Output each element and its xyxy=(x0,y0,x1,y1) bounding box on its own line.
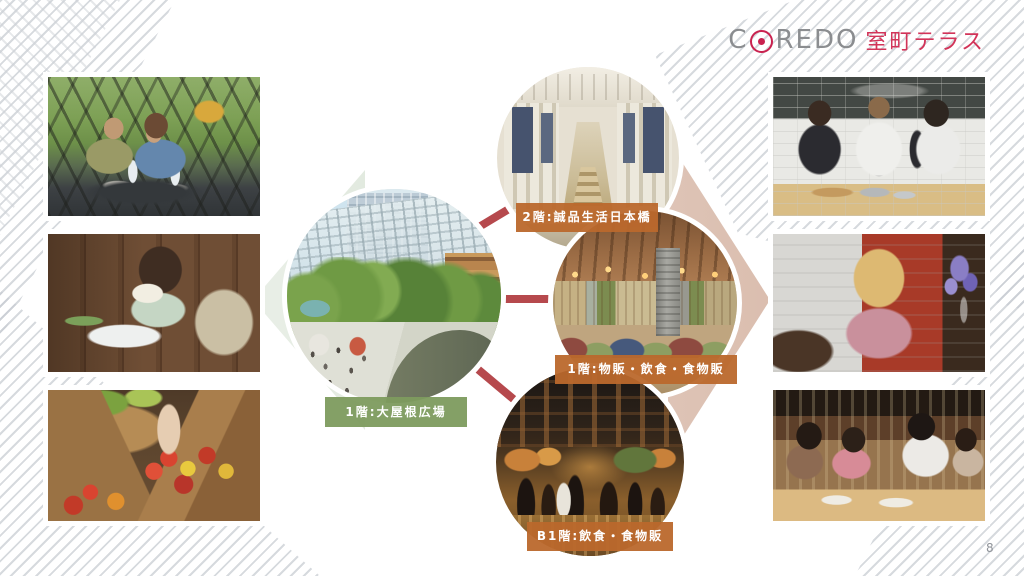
photo-terrace-dining-couple xyxy=(43,72,265,221)
photo-woman-at-red-wall-cafe xyxy=(768,229,990,377)
coredo-target-o-icon xyxy=(750,30,773,53)
banner-left-2 xyxy=(541,113,554,164)
coredo-o-dot xyxy=(758,38,765,45)
stone-pillar xyxy=(656,248,680,336)
photo-friends-dining-together xyxy=(768,385,990,526)
label-floor2: 2階:誠品生活日本橋 xyxy=(516,203,658,232)
label-floorb1: B1階:飲食・食物販 xyxy=(527,522,673,551)
logo-japanese-name: 室町テラス xyxy=(865,24,985,56)
photo-cooking-class xyxy=(768,72,990,221)
logo-letters-redo: REDO xyxy=(775,25,858,55)
logo-letter-c: C xyxy=(728,25,748,55)
back-wall xyxy=(553,281,737,325)
photo-woman-reading-book xyxy=(43,229,265,377)
banner-right-2 xyxy=(623,113,636,164)
slide: 2階:誠品生活日本橋 1階:物販・飲食・食物販 B1階:飲食・食物販 1階:大屋… xyxy=(0,0,1024,576)
page-number: 8 xyxy=(986,541,994,555)
label-floor1: 1階:物販・飲食・食物販 xyxy=(555,355,737,384)
ceiling-beams xyxy=(497,74,679,99)
banner-right xyxy=(643,107,665,173)
plaza-circle-image xyxy=(282,184,506,408)
photo-vegetable-market xyxy=(43,385,265,526)
label-rooftop-plaza: 1階:大屋根広場 xyxy=(325,397,467,427)
banner-left xyxy=(512,107,534,173)
coredo-muromachi-terrace-logo: C REDO 室町テラス xyxy=(728,22,985,58)
